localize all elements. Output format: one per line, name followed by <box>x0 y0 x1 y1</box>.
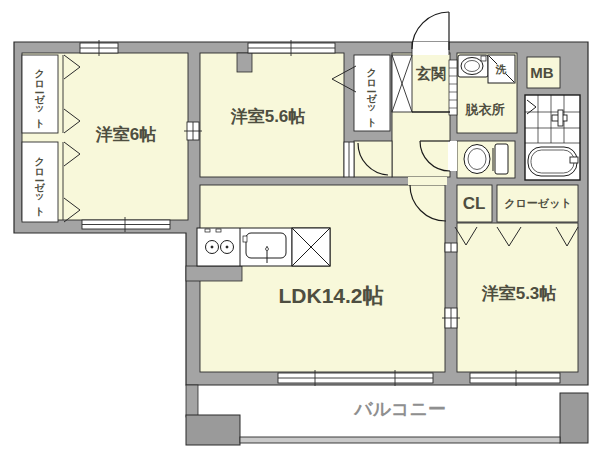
balcony-left-wall <box>186 385 198 417</box>
kitchen-return-wall <box>186 266 242 281</box>
fridge-space-icon <box>292 228 330 266</box>
closet-mid-label: クローゼット <box>366 60 376 123</box>
balcony-railing <box>240 437 560 443</box>
toilet-icon <box>464 144 508 174</box>
bathroom <box>525 95 580 180</box>
vestibule-floor <box>354 141 392 177</box>
closet-left-bottom-label: クローゼット <box>34 149 44 212</box>
dressing-room-label: 脱衣所 <box>466 103 505 116</box>
opening-ldk-bedroom53-a <box>445 243 457 252</box>
balcony-right-pillar <box>560 393 588 443</box>
balcony-left-pillar <box>186 415 240 445</box>
floor-plan-canvas <box>0 0 600 459</box>
floor-plan: 洋室6帖 洋室5.6帖 LDK14.2帖 洋室5.3帖 バルコニー 玄関 脱衣所… <box>0 0 600 459</box>
hall-door-opening <box>408 177 447 185</box>
washer-label: 洗 <box>496 64 507 75</box>
mb-label: MB <box>530 65 553 80</box>
toilet-door-gap <box>448 141 457 171</box>
opening-ldk-bedroom53-b <box>442 308 460 328</box>
wash-basin-icon <box>458 55 488 77</box>
accordion-door <box>449 60 457 115</box>
cl-label: CL <box>463 195 486 212</box>
pillar <box>237 53 252 72</box>
opening-bedroom6-bedroom56 <box>184 122 202 140</box>
bedroom6-label: 洋室6帖 <box>96 126 156 143</box>
closet-left-top-label: クローゼット <box>34 61 44 124</box>
bathtub-icon <box>528 147 578 176</box>
closet-right-label: クローゼット <box>504 198 571 209</box>
front-door-opening <box>412 42 449 55</box>
bedroom53-label: 洋室5.3帖 <box>482 285 557 302</box>
ldk-label: LDK14.2帖 <box>278 285 383 306</box>
balcony-label: バルコニー <box>354 400 446 418</box>
bedroom56-label: 洋室5.6帖 <box>231 108 306 125</box>
entrance-label: 玄関 <box>416 66 446 81</box>
